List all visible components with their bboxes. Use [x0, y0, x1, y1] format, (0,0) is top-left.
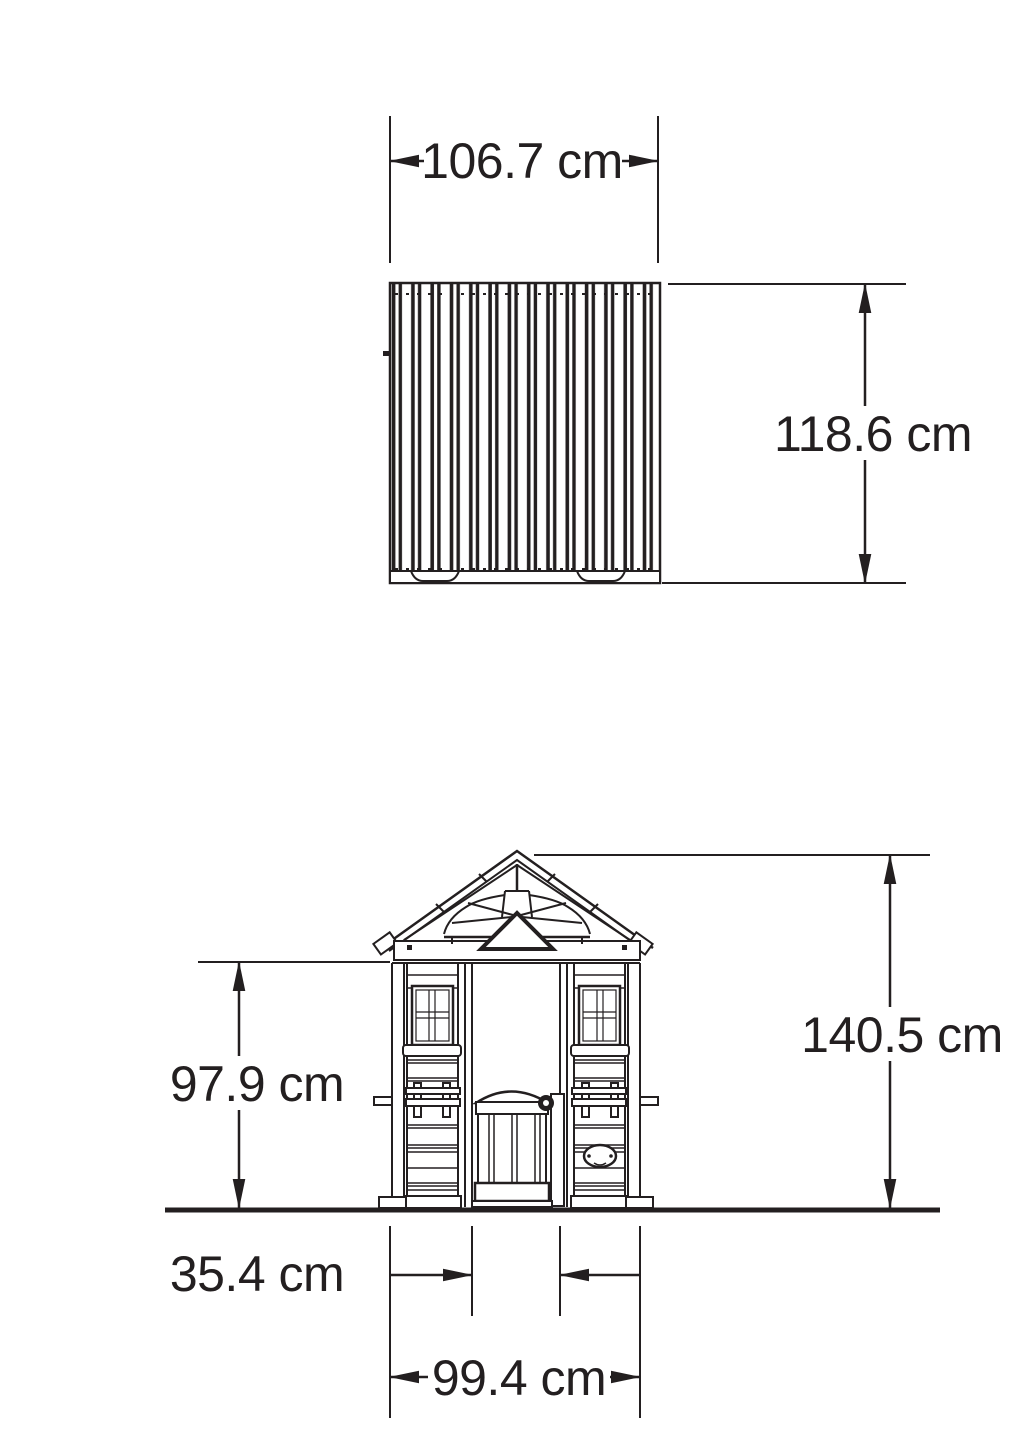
bottom-dimensions: 35.4 cm 99.4 cm [170, 1226, 640, 1418]
dimension-roof-depth: 118.6 cm [662, 284, 976, 583]
oval-dot [587, 1154, 591, 1158]
door [472, 1092, 564, 1208]
roof-bracket-notch [411, 571, 459, 581]
roof-plan [383, 283, 660, 583]
door-threshold [472, 1201, 552, 1207]
front-elevation: 97.9 cm 140.5 cm 35.4 cm 99.4 cm [165, 851, 1003, 1418]
sunburst-arc-right [529, 895, 590, 934]
oval-dot [609, 1154, 613, 1158]
sunburst-arc-left [444, 895, 505, 934]
sunburst-ray [522, 917, 582, 923]
base-foot [626, 1197, 653, 1208]
oval-decoration [584, 1145, 616, 1167]
roof-width-label: 106.7 cm [421, 133, 623, 189]
right-window [571, 975, 629, 1056]
planter-bar [572, 1099, 626, 1106]
dimension-roof-width: 106.7 cm [390, 116, 658, 263]
dimension-wall-height: 97.9 cm [166, 962, 390, 1208]
total-height-label: 140.5 cm [801, 1007, 1003, 1063]
left-window [403, 975, 461, 1056]
wall-height-label: 97.9 cm [170, 1056, 344, 1112]
sunburst-ray [452, 917, 512, 923]
right-planter-rail [572, 1083, 626, 1117]
door-top-rail [476, 1102, 548, 1114]
right-peg [640, 1097, 658, 1105]
base-board [571, 1196, 628, 1208]
window-frame [412, 986, 453, 1045]
gable-sunburst [444, 864, 590, 949]
base-foot [379, 1197, 406, 1208]
nail-dot [407, 945, 412, 950]
planter-bar [406, 1088, 460, 1094]
window-sill [571, 1045, 629, 1056]
top-view: 106.7 cm 118.6 cm [383, 116, 976, 583]
left-peg [374, 1097, 392, 1105]
roof-deck [390, 283, 660, 583]
window-sill [403, 1045, 461, 1056]
window-frame [579, 986, 620, 1045]
playhouse-dimension-diagram: 106.7 cm 118.6 cm [0, 0, 1026, 1440]
planter-bar [406, 1099, 460, 1106]
planter-bar [572, 1088, 626, 1094]
diagram-svg: 106.7 cm 118.6 cm [0, 0, 1026, 1440]
door-latch-strip [551, 1094, 564, 1206]
base-width-label: 99.4 cm [432, 1350, 606, 1406]
left-planter-rail [406, 1083, 460, 1117]
nail-dot [622, 945, 627, 950]
door-bottom-rail [475, 1183, 549, 1201]
sunburst-ray [521, 903, 566, 915]
roof-bracket-notch [577, 571, 625, 581]
sunburst-ray [468, 903, 513, 915]
roof-depth-label: 118.6 cm [774, 406, 972, 462]
dimension-door-width: 35.4 cm [170, 1246, 640, 1302]
door-knob-center [543, 1100, 549, 1106]
alignment-tab [383, 351, 391, 356]
door-width-label: 35.4 cm [170, 1246, 344, 1302]
dimension-base-width: 99.4 cm [390, 1350, 640, 1406]
base-board [404, 1196, 461, 1208]
